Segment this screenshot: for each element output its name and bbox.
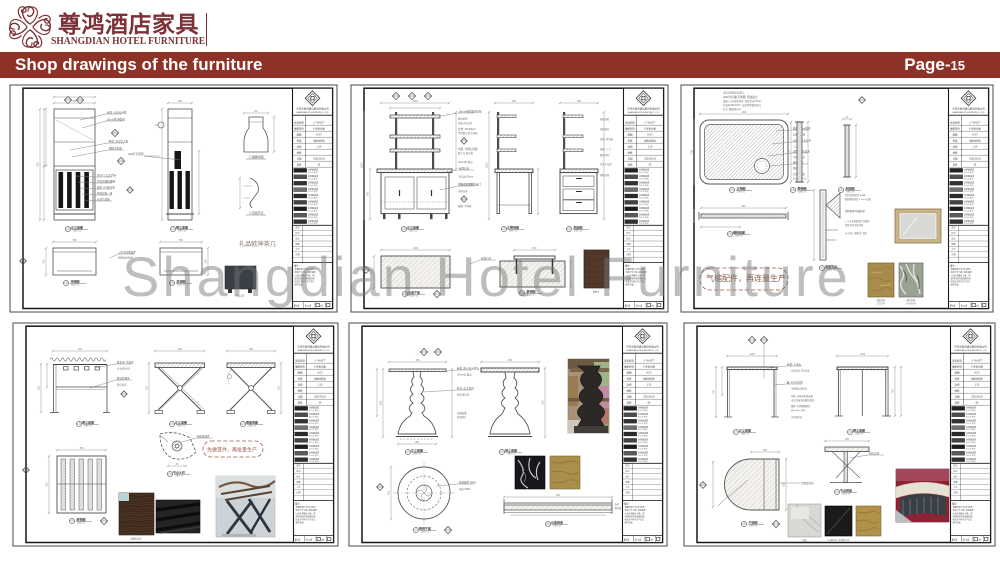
svg-text:顶视图: 顶视图 [70, 279, 79, 284]
svg-text:2020.06.18: 2020.06.18 [643, 396, 655, 398]
svg-text:项目名称: 项目名称 [624, 358, 634, 362]
svg-text:底座配重: 底座配重 [457, 411, 467, 415]
svg-text:比例: 比例 [955, 382, 960, 386]
svg-text:制图: 制图 [627, 370, 632, 374]
svg-text:开关: 触摸感应式: 开关: 触摸感应式 [723, 107, 742, 111]
svg-text:L*-W-62*T: L*-W-62*T [645, 122, 656, 124]
svg-text:黑色哑光漆: 黑色哑光漆 [457, 393, 470, 397]
svg-text:① 踢脚详图: ① 踢脚详图 [249, 155, 264, 159]
svg-text:五金挂钩4只: 五金挂钩4只 [117, 367, 131, 371]
svg-text:项目名称: 项目名称 [294, 120, 304, 124]
svg-text:材质: 材质 [955, 388, 960, 392]
svg-text:页码: 页码 [628, 162, 633, 166]
svg-text:剖立面图: 剖立面图 [505, 448, 517, 453]
svg-text:1:10: 1:10 [975, 384, 980, 386]
svg-text:比例: 比例 [627, 382, 632, 386]
svg-text:550: 550 [73, 100, 78, 103]
svg-text:600: 600 [78, 348, 83, 351]
svg-text:备注:: 备注: [624, 502, 630, 506]
svg-text:内衬龙骨: 内衬龙骨 [869, 451, 880, 455]
svg-text:1600: 1600 [486, 162, 489, 168]
svg-text:600: 600 [46, 482, 49, 487]
svg-text:材质: 材质 [297, 150, 302, 154]
svg-text:比例: 比例 [953, 144, 958, 148]
svg-text:抽屉: 三节: 抽屉: 三节 [600, 147, 612, 151]
svg-text:台面: 大理石台面: 台面: 大理石台面 [458, 147, 478, 151]
svg-text:腿脚: 不锈钢: 腿脚: 不锈钢 [458, 204, 472, 208]
svg-text:可调节层板: 可调节层板 [97, 197, 110, 201]
svg-text:图纸名称: 图纸名称 [294, 126, 304, 130]
svg-text:1100: 1100 [860, 353, 866, 356]
svg-text:L*-W-62*T: L*-W-62*T [970, 122, 981, 124]
svg-text:1:10: 1:10 [317, 146, 322, 148]
svg-text:侧立面图: 侧立面图 [853, 428, 865, 433]
svg-text:审核: 审核 [955, 376, 960, 380]
svg-text:450: 450 [577, 100, 582, 103]
svg-text:1:10: 1:10 [318, 384, 323, 386]
svg-text:柱身: 实木车枳: 柱身: 实木车枳 [457, 386, 474, 390]
svg-text:铜质铆接件: 铜质铆接件 [197, 434, 210, 438]
svg-text:2020.06.18: 2020.06.18 [969, 158, 981, 160]
svg-text:材质: 材质 [627, 388, 632, 392]
svg-text:制图: 制图 [297, 132, 302, 136]
svg-text:节点大样: 节点大样 [173, 470, 185, 475]
svg-text:内置层板一块: 内置层板一块 [97, 191, 113, 195]
svg-text:侧立面图: 侧立面图 [176, 225, 188, 230]
svg-text:镜面三边1米距离处, 照度需达700lux: 镜面三边1米距离处, 照度需达700lux [723, 99, 762, 103]
svg-text:450: 450 [178, 100, 183, 103]
svg-text:L*-W-62*T: L*-W-62*T [972, 360, 983, 362]
svg-text:20mm厚 倒圆边: 20mm厚 倒圆边 [107, 117, 126, 121]
svg-text:层板射灯: 层板射灯 [600, 127, 610, 131]
svg-text:正立面图: 正立面图 [411, 448, 423, 453]
svg-text:软包皮革: 软包皮革 [117, 383, 127, 387]
svg-text:正立面图: 正立面图 [407, 225, 419, 230]
svg-text:台面石材: 台面石材 [459, 166, 470, 170]
svg-text:图纸名称: 图纸名称 [950, 126, 960, 130]
svg-text:页码: 页码 [955, 400, 960, 404]
svg-text:台面: 石英石台面: 台面: 石英石台面 [107, 110, 127, 114]
svg-text:东莞市尊鸿酒店家具有限公司: 东莞市尊鸿酒店家具有限公司 [954, 345, 987, 349]
svg-text:日期: 日期 [955, 394, 960, 398]
svg-text:东莞市尊鸿酒店家具有限公司: 东莞市尊鸿酒店家具有限公司 [627, 107, 660, 111]
svg-text:A-GY: A-GY [317, 371, 323, 374]
svg-text:材质: 材质 [953, 150, 958, 154]
svg-text:② 层板节点: ② 层板节点 [249, 211, 264, 215]
svg-text:图纸名称: 图纸名称 [624, 364, 634, 368]
svg-text:图纸名称: 图纸名称 [295, 364, 305, 368]
svg-text:800: 800 [367, 191, 370, 196]
svg-text:柜体: 多层实木板: 柜体: 多层实木板 [109, 139, 129, 143]
svg-text:1600: 1600 [361, 162, 364, 168]
svg-text:A-GY: A-GY [647, 133, 653, 136]
svg-text:450: 450 [512, 100, 517, 103]
svg-text:550: 550 [763, 449, 768, 452]
svg-text:背板: 木饰面: 背板: 木饰面 [600, 137, 614, 141]
svg-text:台面: 人造石: 台面: 人造石 [787, 362, 802, 366]
svg-text:侧视图: 侧视图 [797, 186, 806, 191]
svg-text:2020.06.18: 2020.06.18 [644, 158, 656, 160]
svg-text:380: 380 [415, 441, 420, 444]
svg-text:日期: 日期 [297, 156, 302, 160]
svg-text:制图: 制图 [298, 370, 303, 374]
svg-text:先做首件，再批量生产: 先做首件，再批量生产 [207, 447, 257, 454]
svg-text:审核: 审核 [953, 138, 958, 142]
svg-text:450: 450 [80, 447, 85, 450]
svg-text:LED灯带照明: LED灯带照明 [128, 152, 144, 156]
svg-text:550: 550 [179, 239, 184, 242]
svg-text:制图: 制图 [953, 132, 958, 136]
svg-text:防滑垫片: 防滑垫片 [457, 415, 467, 419]
svg-text:挂衣钩: 古铜色: 挂衣钩: 古铜色 [117, 360, 134, 364]
svg-text:600: 600 [783, 482, 786, 487]
svg-text:18mm钢化玻璃层板: 18mm钢化玻璃层板 [459, 109, 482, 113]
svg-text:审核: 审核 [628, 138, 633, 142]
svg-text:油漆: PU哑光漆: 油漆: PU哑光漆 [97, 185, 115, 189]
svg-text:剖面图: 剖面图 [573, 225, 582, 230]
svg-text:页码: 页码 [297, 162, 302, 166]
svg-text:备注:: 备注: [952, 502, 958, 506]
svg-text:1200: 1200 [749, 353, 755, 356]
svg-text:A-GY: A-GY [972, 133, 978, 136]
svg-text:20mm厚 圆边: 20mm厚 圆边 [457, 373, 472, 377]
svg-text:材质: 材质 [298, 388, 303, 392]
svg-text:600: 600 [178, 348, 183, 351]
svg-text:900: 900 [742, 111, 747, 114]
svg-text:750: 750 [892, 389, 895, 394]
svg-text:L*-W-62*T: L*-W-62*T [644, 360, 655, 362]
svg-text:台面: 爵士白大理石: 台面: 爵士白大理石 [457, 366, 480, 370]
svg-text:650: 650 [38, 385, 41, 390]
svg-text:250: 250 [845, 438, 850, 441]
svg-text:正视图: 正视图 [736, 186, 745, 191]
svg-text:450: 450 [249, 348, 254, 351]
svg-text:450: 450 [556, 494, 561, 497]
svg-text:内嵌灰镜: 内嵌灰镜 [458, 189, 468, 193]
svg-text:450: 450 [416, 359, 421, 362]
svg-text:立柱: 40*40mm: 立柱: 40*40mm [458, 127, 476, 131]
svg-text:铝合金固定件 a=16: 铝合金固定件 a=16 [845, 193, 866, 197]
svg-text:材质: 材质 [628, 150, 633, 154]
svg-text:制图: 制图 [955, 370, 960, 374]
svg-text:项目名称: 项目名称 [952, 358, 962, 362]
svg-text:700: 700 [691, 149, 694, 154]
svg-text:1:10: 1:10 [647, 384, 652, 386]
svg-text:日期: 日期 [298, 394, 303, 398]
svg-text:俯视平面: 俯视平面 [419, 526, 431, 531]
svg-text:底座 Ø380: 底座 Ø380 [459, 487, 471, 491]
svg-text:开放式散热格栅: 开放式散热格栅 [97, 179, 116, 183]
svg-text:750: 750 [713, 389, 716, 394]
svg-text:日期: 日期 [627, 394, 632, 398]
svg-text:台面剖面: 台面剖面 [551, 520, 563, 525]
svg-text:A-GY: A-GY [646, 371, 652, 374]
svg-text:700: 700 [788, 149, 791, 154]
svg-text:L*-W-62*T: L*-W-62*T [314, 122, 325, 124]
svg-text:平面图: 平面图 [748, 520, 757, 525]
svg-text:正立面图: 正立面图 [739, 428, 751, 433]
svg-text:1:10: 1:10 [973, 146, 978, 148]
svg-text:东莞市尊鸿酒店家具有限公司: 东莞市尊鸿酒店家具有限公司 [297, 345, 330, 349]
svg-text:日期: 日期 [628, 156, 633, 160]
svg-text:胡桃木饰面: 胡桃木饰面 [109, 146, 122, 150]
svg-text:页码: 页码 [953, 162, 958, 166]
svg-text:左侧视图: 左侧视图 [506, 225, 519, 230]
svg-text:日期: 日期 [953, 156, 958, 160]
svg-text:300: 300 [43, 259, 46, 264]
svg-text:东莞市尊鸿酒店家具有限公司: 东莞市尊鸿酒店家具有限公司 [296, 107, 329, 111]
svg-text:磨边处理: 磨边处理 [458, 117, 468, 121]
svg-text:项目名称: 项目名称 [950, 120, 960, 124]
svg-text:560: 560 [542, 400, 545, 405]
svg-text:横剖面图: 横剖面图 [733, 230, 745, 235]
svg-text:20mm厚 倒边: 20mm厚 倒边 [458, 160, 473, 164]
svg-text:俯视图: 俯视图 [76, 517, 85, 522]
svg-text:备注:: 备注: [950, 264, 956, 268]
svg-text:台面造型边: 台面造型边 [801, 481, 814, 485]
svg-text:审核: 审核 [298, 376, 303, 380]
svg-text:侧面视图: 侧面视图 [246, 420, 258, 425]
svg-text:项目名称: 项目名称 [625, 120, 635, 124]
svg-text:爵士白 亚光面: 爵士白 亚光面 [458, 151, 474, 155]
svg-text:L*-W-62*T: L*-W-62*T [315, 360, 326, 362]
svg-text:东莞市尊鸿酒店家具有限公司: 东莞市尊鸿酒店家具有限公司 [952, 107, 985, 111]
svg-text:1:10: 1:10 [648, 146, 653, 148]
svg-text:正立面图: 正立面图 [71, 225, 83, 230]
svg-text:百叶门: 实木百叶: 百叶门: 实木百叶 [97, 173, 117, 177]
svg-text:900: 900 [742, 205, 747, 208]
svg-text:墙体预埋 防潮处理: 墙体预埋 防潮处理 [845, 209, 865, 213]
svg-text:450: 450 [388, 490, 391, 495]
svg-text:A-GY: A-GY [974, 371, 980, 374]
svg-text:备注:: 备注: [295, 502, 301, 506]
svg-text:850: 850 [37, 162, 40, 167]
svg-text:比例: 比例 [297, 144, 302, 148]
svg-text:侧立面图: 侧立面图 [82, 420, 94, 425]
svg-text:A-GY: A-GY [316, 133, 322, 136]
svg-text:台面圆形 Ø450: 台面圆形 Ø450 [459, 480, 477, 484]
svg-text:2020.06.18: 2020.06.18 [313, 158, 325, 160]
svg-text:正立面图: 正立面图 [175, 420, 187, 425]
svg-text:节点剖面: 节点剖面 [840, 488, 852, 493]
svg-text:页码: 页码 [627, 400, 632, 404]
svg-text:550: 550 [73, 239, 78, 242]
svg-text:静音导轨: 静音导轨 [600, 153, 610, 157]
svg-text:450: 450 [508, 359, 513, 362]
svg-text:520: 520 [278, 385, 281, 390]
svg-text:560: 560 [380, 400, 383, 405]
svg-text:色温4100K±10%, 安装需预留检修口: 色温4100K±10%, 安装需预留检修口 [723, 103, 762, 107]
svg-text:图纸名称: 图纸名称 [625, 126, 635, 130]
svg-text:审核: 审核 [297, 138, 302, 142]
svg-text:项目名称: 项目名称 [295, 358, 305, 362]
svg-text:520: 520 [146, 385, 149, 390]
svg-text:图纸名称: 图纸名称 [952, 364, 962, 368]
svg-text:东莞市尊鸿酒店家具有限公司: 东莞市尊鸿酒店家具有限公司 [626, 345, 659, 349]
svg-text:下挂边100mm: 下挂边100mm [458, 175, 473, 179]
svg-text:比例: 比例 [298, 382, 303, 386]
svg-text:审核: 审核 [627, 376, 632, 380]
svg-text:制图: 制图 [628, 132, 633, 136]
svg-text:2020.06.18: 2020.06.18 [971, 396, 983, 398]
svg-text:LED背光镜(带防雾) 周边发光: LED背光镜(带防雾) 周边发光 [723, 95, 758, 99]
svg-text:比例: 比例 [628, 144, 633, 148]
svg-text:2020.06.18: 2020.06.18 [314, 396, 326, 398]
svg-text:腿: 40*40方管: 腿: 40*40方管 [787, 380, 803, 384]
svg-text:靠墙防撞条: 靠墙防撞条 [117, 376, 130, 380]
svg-text:不锈钢方管 古铜色: 不锈钢方管 古铜色 [458, 131, 478, 135]
svg-text:1200: 1200 [412, 100, 418, 103]
svg-text:页码: 页码 [298, 400, 303, 404]
svg-text:剖面图: 剖面图 [845, 186, 854, 191]
